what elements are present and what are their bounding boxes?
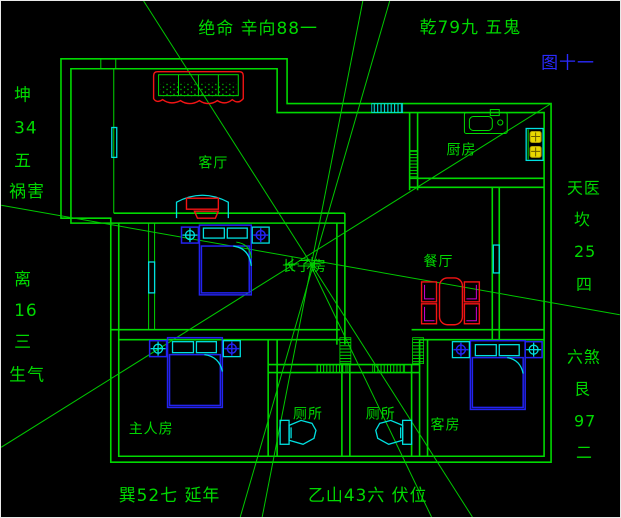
label-bottom-right: 乙山43六 伏位 [308, 485, 428, 505]
dining-chair [464, 282, 479, 302]
room-label-kitchen: 厨房 [446, 142, 476, 158]
bedside-lamp [223, 341, 240, 357]
corridor-door-hatch-2 [413, 338, 424, 364]
figure-number: 图十一 [541, 53, 595, 73]
tv-cabinet [177, 195, 229, 218]
room-label-toilet-1: 厕所 [293, 406, 323, 422]
dining-partition-window [493, 245, 499, 273]
cad-floorplan-screenshot: 绝命 辛向88一 乾79九 五鬼 图十一 坤 34 五 祸害 离 16 三 生气… [0, 0, 621, 518]
door-and-vent-hatches [317, 104, 424, 373]
room-label-guest: 客房 [431, 416, 461, 433]
dining-chair [422, 282, 437, 302]
room-label-toilet-2: 厕所 [366, 406, 396, 422]
toilet-fixture-1 [280, 420, 316, 444]
eldest-room-window [149, 262, 155, 293]
bedside-lamp [252, 227, 269, 243]
bedside-lamp [150, 341, 167, 357]
label-left-8: 生气 [9, 365, 45, 385]
label-right-5: 六煞 [567, 348, 601, 367]
label-left-4: 祸害 [9, 181, 45, 201]
bed-eldest-son [199, 225, 251, 295]
bedside-lamp [525, 342, 542, 358]
label-right-6: 艮 [574, 379, 591, 398]
room-label-eldest-son: 长子房 [282, 259, 327, 275]
label-left-2: 34 [14, 117, 38, 137]
label-right-1: 天医 [567, 178, 601, 197]
kitchen-top-window [372, 104, 403, 113]
label-top-left: 绝命 辛向88一 [198, 18, 318, 38]
room-label-dining: 餐厅 [424, 254, 454, 270]
toilet1-vent-hatch [317, 365, 348, 373]
bed-guest [470, 341, 525, 410]
label-right-4: 四 [576, 275, 593, 294]
label-right-8: 二 [576, 443, 593, 462]
bed-master [168, 338, 223, 408]
room-label-master: 主人房 [129, 421, 174, 437]
kitchen-door-hatch [410, 150, 418, 178]
sofa [154, 72, 244, 104]
label-left-7: 三 [14, 332, 32, 352]
label-left-3: 五 [14, 150, 32, 170]
toilet-fixture-2 [376, 420, 412, 444]
kitchen-stove [526, 129, 543, 161]
label-right-2: 坎 [574, 210, 591, 229]
label-left-5: 离 [14, 269, 32, 289]
bedside-lamp [182, 227, 199, 243]
label-top-right: 乾79九 五鬼 [420, 17, 522, 37]
label-left-1: 坤 [14, 85, 32, 105]
room-label-living: 客厅 [198, 154, 228, 171]
floorplan-canvas: 绝命 辛向88一 乾79九 五鬼 图十一 坤 34 五 祸害 离 16 三 生气… [1, 1, 620, 517]
label-right-3: 25 [574, 242, 596, 261]
corridor-door-hatch-1 [340, 338, 351, 364]
label-left-6: 16 [14, 300, 38, 320]
label-bottom-left: 巽52七 延年 [119, 485, 221, 505]
dining-chair [464, 304, 479, 324]
dining-chair [422, 304, 437, 324]
bedside-lamp [452, 342, 469, 358]
label-right-7: 97 [574, 411, 596, 430]
